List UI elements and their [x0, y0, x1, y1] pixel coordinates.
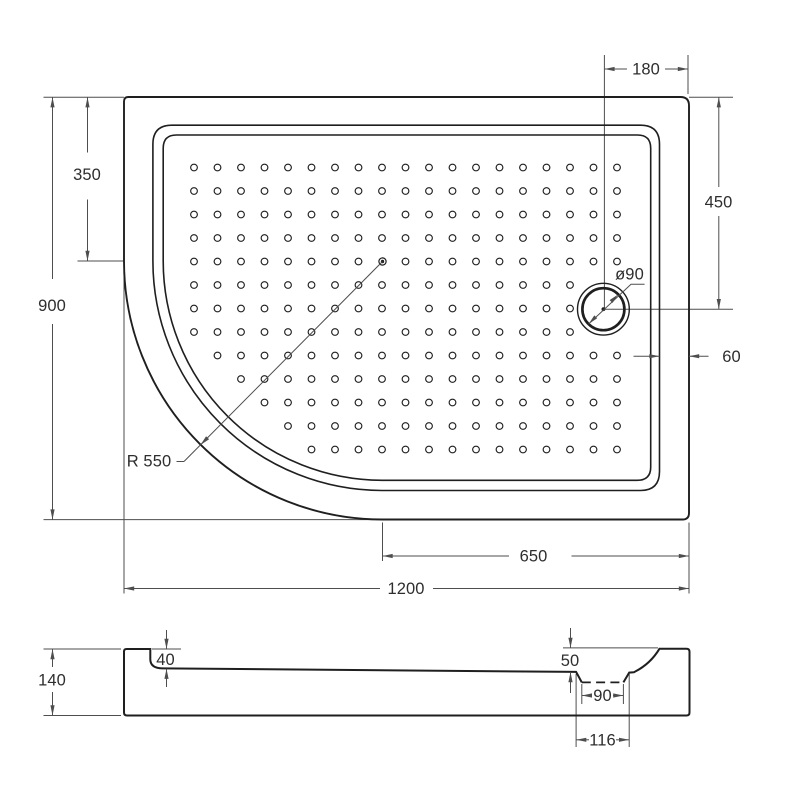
svg-text:40: 40	[156, 651, 175, 669]
svg-text:1200: 1200	[387, 580, 424, 598]
svg-text:180: 180	[632, 61, 660, 79]
svg-text:116: 116	[589, 731, 616, 749]
svg-text:R 550: R 550	[127, 453, 172, 471]
svg-text:350: 350	[73, 166, 101, 184]
svg-text:50: 50	[561, 652, 580, 670]
svg-text:140: 140	[38, 672, 66, 690]
svg-text:450: 450	[705, 194, 733, 212]
svg-text:900: 900	[38, 297, 66, 315]
svg-text:ø90: ø90	[615, 266, 644, 284]
svg-text:90: 90	[593, 687, 612, 705]
svg-text:60: 60	[722, 348, 741, 366]
svg-text:650: 650	[520, 548, 548, 566]
